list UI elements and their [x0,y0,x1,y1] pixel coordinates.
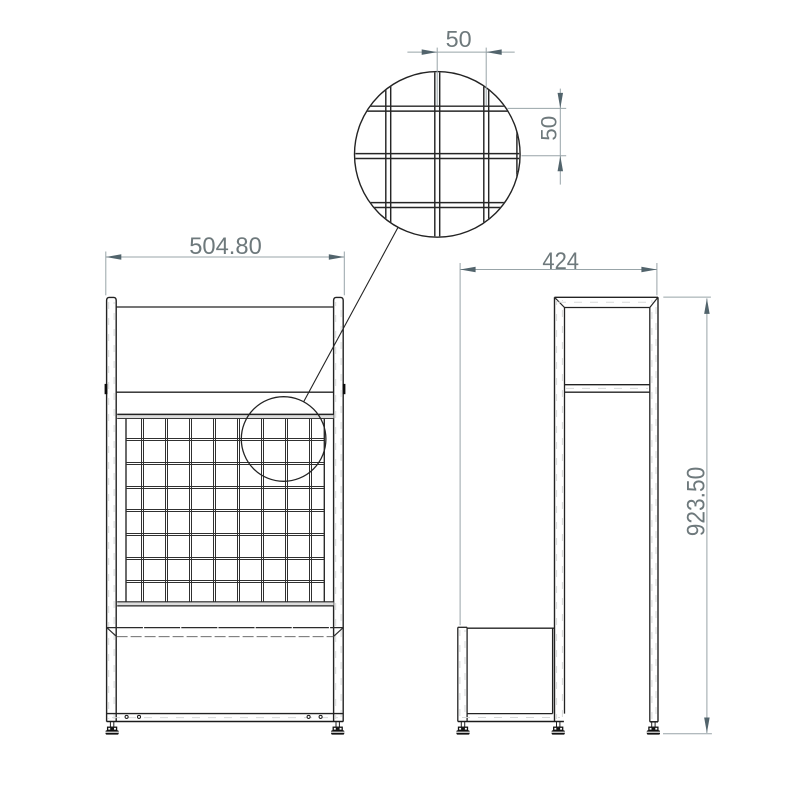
svg-text:424: 424 [542,248,579,275]
svg-text:50: 50 [536,116,561,141]
svg-text:50: 50 [446,26,472,52]
svg-text:504.80: 504.80 [189,233,262,260]
svg-text:923.50: 923.50 [683,467,711,537]
